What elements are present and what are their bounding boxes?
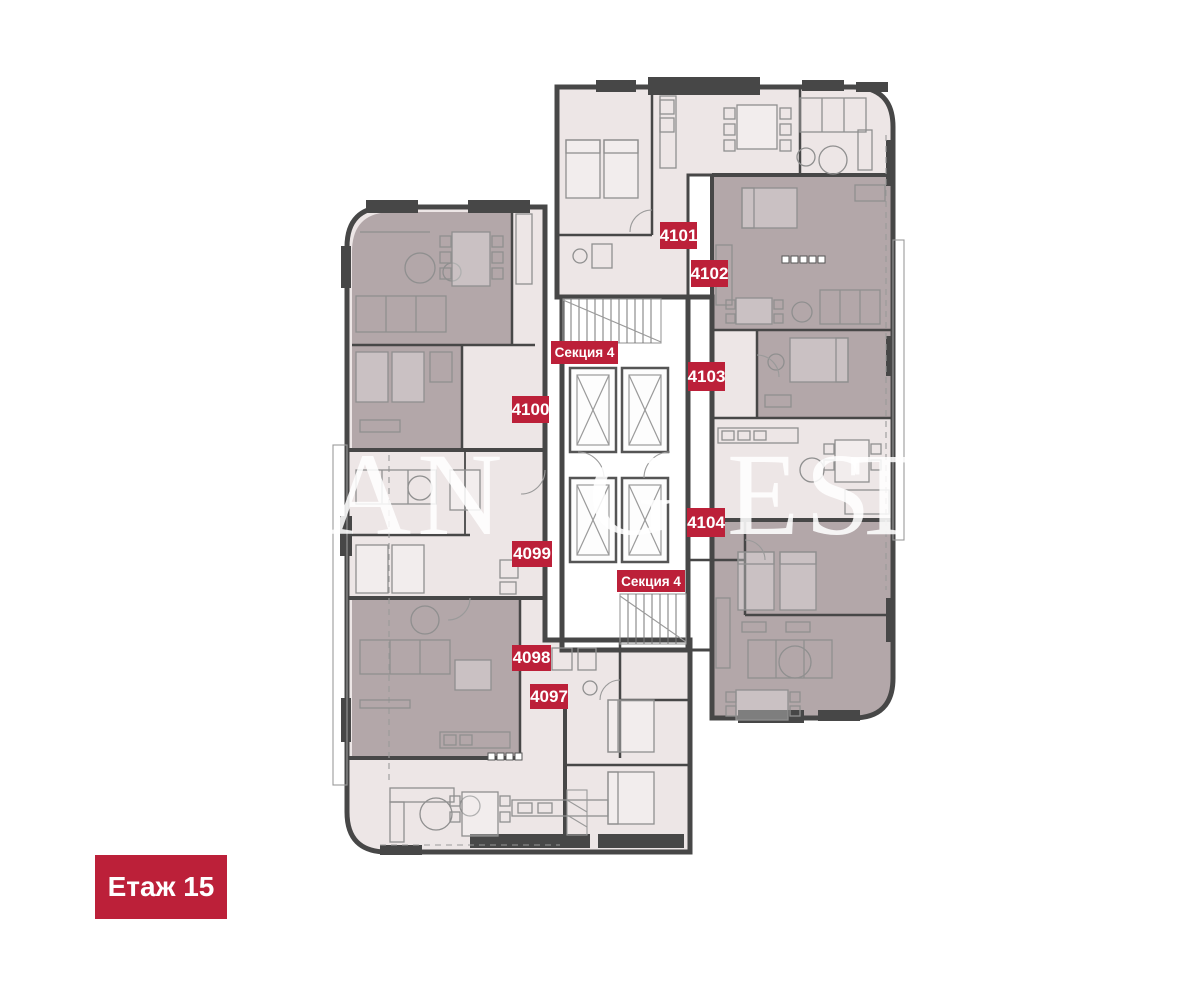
unit-badge-4097[interactable]: 4097	[530, 684, 568, 709]
unit-badge-4102[interactable]: 4102	[691, 260, 728, 287]
floor-badge: Етаж 15	[95, 855, 227, 919]
unit-badge-4101[interactable]: 4101	[660, 222, 697, 249]
floor-plan-svg	[0, 0, 1200, 990]
section-badge-bottom: Секция 4	[617, 570, 685, 592]
floor-plan-page: AN G ES T 4101 4102 4103 4104 4100 4099 …	[0, 0, 1200, 990]
unit-badge-4100[interactable]: 4100	[512, 396, 549, 423]
unit-badge-4103[interactable]: 4103	[688, 362, 725, 391]
unit-badge-4099[interactable]: 4099	[512, 541, 552, 567]
unit-badge-4098[interactable]: 4098	[512, 645, 551, 671]
section-badge-top: Секция 4	[551, 341, 618, 364]
unit-badge-4104[interactable]: 4104	[687, 508, 725, 537]
